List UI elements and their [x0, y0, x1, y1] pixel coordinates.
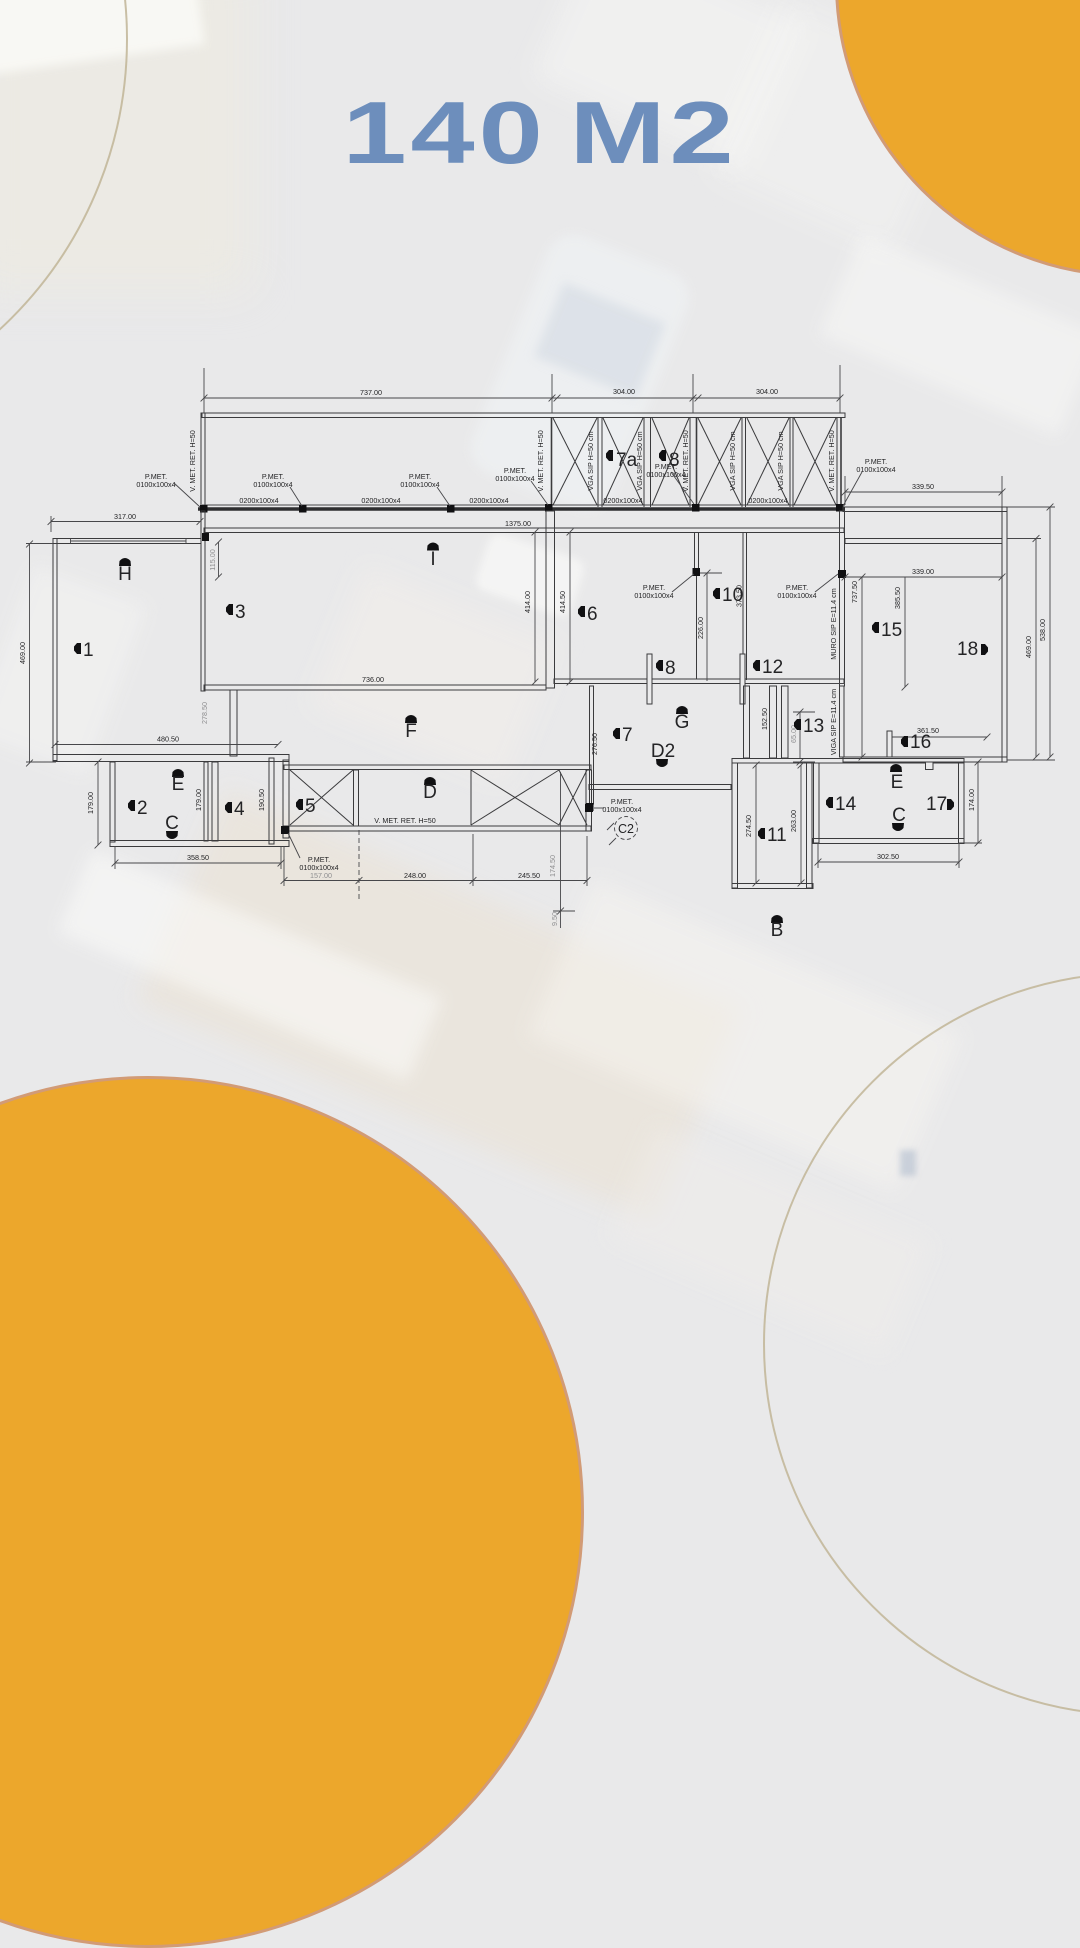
svg-text:174.50: 174.50 — [548, 855, 557, 877]
svg-text:0100x100x4: 0100x100x4 — [602, 805, 641, 814]
svg-text:115.00: 115.00 — [208, 549, 217, 570]
svg-text:317.00: 317.00 — [114, 512, 136, 521]
svg-text:E: E — [172, 774, 185, 795]
svg-text:737.00: 737.00 — [360, 388, 382, 397]
svg-text:7: 7 — [622, 725, 633, 746]
svg-text:V. MET. RET. H=50: V. MET. RET. H=50 — [827, 430, 836, 491]
svg-text:190.50: 190.50 — [257, 789, 266, 811]
svg-text:I: I — [430, 549, 435, 570]
svg-text:0200x100x4: 0200x100x4 — [603, 496, 642, 505]
svg-text:152.50: 152.50 — [760, 708, 769, 730]
svg-text:VGA SIP H=50 cm: VGA SIP H=50 cm — [728, 431, 737, 490]
svg-text:414.00: 414.00 — [523, 591, 532, 613]
svg-text:D2: D2 — [651, 741, 675, 762]
svg-text:C2: C2 — [618, 822, 634, 836]
svg-text:373.50: 373.50 — [735, 585, 744, 607]
svg-text:C: C — [892, 805, 906, 826]
svg-text:G: G — [675, 712, 690, 733]
svg-text:1375.00: 1375.00 — [505, 519, 531, 528]
svg-text:736.00: 736.00 — [362, 675, 384, 684]
svg-text:0100x100x4: 0100x100x4 — [646, 470, 685, 479]
svg-text:16: 16 — [910, 732, 931, 753]
svg-text:12: 12 — [762, 657, 783, 678]
svg-text:11: 11 — [767, 825, 787, 846]
svg-text:9.50: 9.50 — [550, 912, 559, 926]
svg-text:0100x100x4: 0100x100x4 — [253, 480, 292, 489]
svg-text:385.50: 385.50 — [893, 587, 902, 609]
svg-text:0200x100x4: 0200x100x4 — [748, 496, 787, 505]
svg-text:469.00: 469.00 — [1024, 636, 1033, 658]
svg-text:15: 15 — [881, 620, 902, 641]
svg-text:302.50: 302.50 — [877, 852, 899, 861]
svg-text:F: F — [405, 721, 417, 742]
svg-text:VGA SIP H=50 cm: VGA SIP H=50 cm — [776, 431, 785, 490]
svg-text:0100x100x4: 0100x100x4 — [136, 480, 175, 489]
svg-text:274.50: 274.50 — [744, 815, 753, 837]
svg-text:D: D — [423, 782, 437, 803]
svg-text:179.00: 179.00 — [194, 789, 203, 811]
svg-text:6: 6 — [587, 604, 598, 625]
svg-text:339.50: 339.50 — [912, 482, 934, 491]
svg-text:0100x100x4: 0100x100x4 — [634, 591, 673, 600]
svg-text:0100x100x4: 0100x100x4 — [856, 465, 895, 474]
svg-text:0100x100x4: 0100x100x4 — [495, 474, 534, 483]
svg-text:358.50: 358.50 — [187, 853, 209, 862]
svg-text:V. MET. RET. H=50: V. MET. RET. H=50 — [681, 430, 690, 491]
svg-text:339.00: 339.00 — [912, 567, 934, 576]
svg-text:226.00: 226.00 — [696, 617, 705, 639]
svg-text:VIGA SIP E=11.4 cm: VIGA SIP E=11.4 cm — [829, 689, 838, 755]
svg-text:0100x100x4: 0100x100x4 — [777, 591, 816, 600]
svg-text:5: 5 — [305, 796, 316, 817]
svg-text:304.00: 304.00 — [756, 387, 778, 396]
svg-text:18: 18 — [957, 639, 978, 660]
svg-text:0200x100x4: 0200x100x4 — [469, 496, 508, 505]
svg-text:B: B — [771, 920, 784, 941]
svg-text:17: 17 — [926, 794, 947, 815]
svg-text:H: H — [118, 564, 132, 585]
svg-text:248.00: 248.00 — [404, 871, 426, 880]
svg-text:E: E — [891, 772, 904, 793]
svg-text:304.00: 304.00 — [613, 387, 635, 396]
svg-text:480.50: 480.50 — [157, 735, 179, 744]
svg-text:V. MET. RET. H=50: V. MET. RET. H=50 — [374, 816, 435, 825]
svg-text:174.00: 174.00 — [967, 789, 976, 811]
svg-text:0200x100x4: 0200x100x4 — [239, 496, 278, 505]
svg-text:276.50: 276.50 — [590, 733, 599, 755]
svg-text:245.50: 245.50 — [518, 871, 540, 880]
svg-text:538.00: 538.00 — [1038, 619, 1047, 641]
svg-text:278.50: 278.50 — [200, 702, 209, 724]
svg-text:414.50: 414.50 — [558, 591, 567, 613]
svg-text:157.00: 157.00 — [310, 871, 332, 880]
svg-text:8: 8 — [665, 658, 676, 679]
svg-text:7a: 7a — [616, 450, 638, 471]
svg-text:13: 13 — [803, 716, 824, 737]
svg-text:VGA SIP H=50 cm: VGA SIP H=50 cm — [586, 431, 595, 490]
svg-text:4: 4 — [234, 799, 245, 820]
svg-text:V. MET. RET. H=50: V. MET. RET. H=50 — [536, 430, 545, 491]
svg-text:V. MET. RET. H=50: V. MET. RET. H=50 — [188, 430, 197, 491]
svg-text:2: 2 — [137, 798, 148, 819]
svg-text:0100x100x4: 0100x100x4 — [400, 480, 439, 489]
svg-text:179.00: 179.00 — [86, 792, 95, 814]
svg-text:C: C — [165, 813, 179, 834]
svg-text:0200x100x4: 0200x100x4 — [361, 496, 400, 505]
svg-text:1: 1 — [83, 640, 94, 661]
svg-text:MURO SIP E=11.4 cm: MURO SIP E=11.4 cm — [829, 588, 838, 659]
svg-text:14: 14 — [835, 794, 857, 815]
svg-text:737.50: 737.50 — [850, 581, 859, 603]
svg-text:3: 3 — [235, 602, 246, 623]
svg-text:263.00: 263.00 — [789, 810, 798, 832]
svg-text:469.00: 469.00 — [18, 642, 27, 664]
